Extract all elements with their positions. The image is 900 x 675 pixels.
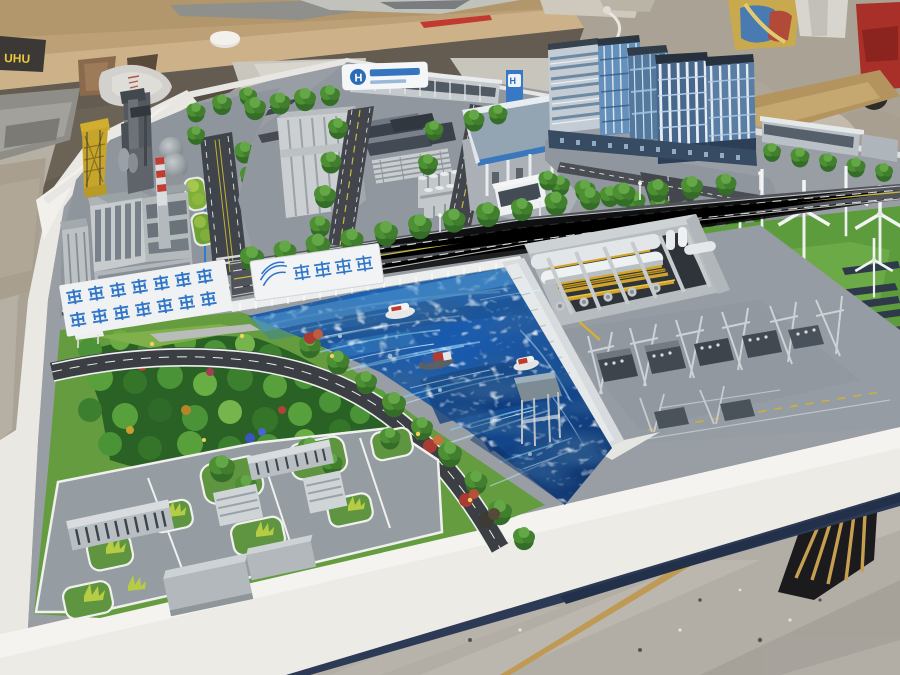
svg-text:H: H	[510, 76, 517, 86]
svg-text:H: H	[354, 72, 362, 84]
svg-text:UHU: UHU	[4, 51, 30, 66]
